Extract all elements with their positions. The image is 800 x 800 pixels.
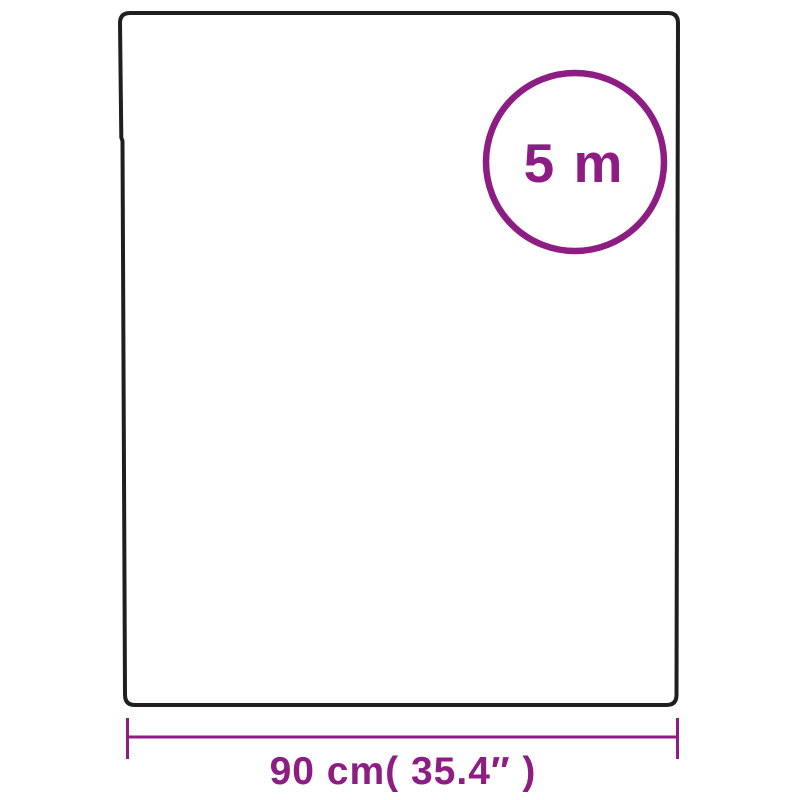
width-dimension-label: 90 cm( 35.4″ ) <box>270 750 537 793</box>
film-sheet-outline <box>120 13 678 705</box>
product-dimension-diagram: 5 m 90 cm( 35.4″ ) <box>0 0 800 800</box>
roll-length-text: 5 m <box>524 132 625 194</box>
diagram-canvas: 5 m 90 cm( 35.4″ ) <box>0 0 800 800</box>
